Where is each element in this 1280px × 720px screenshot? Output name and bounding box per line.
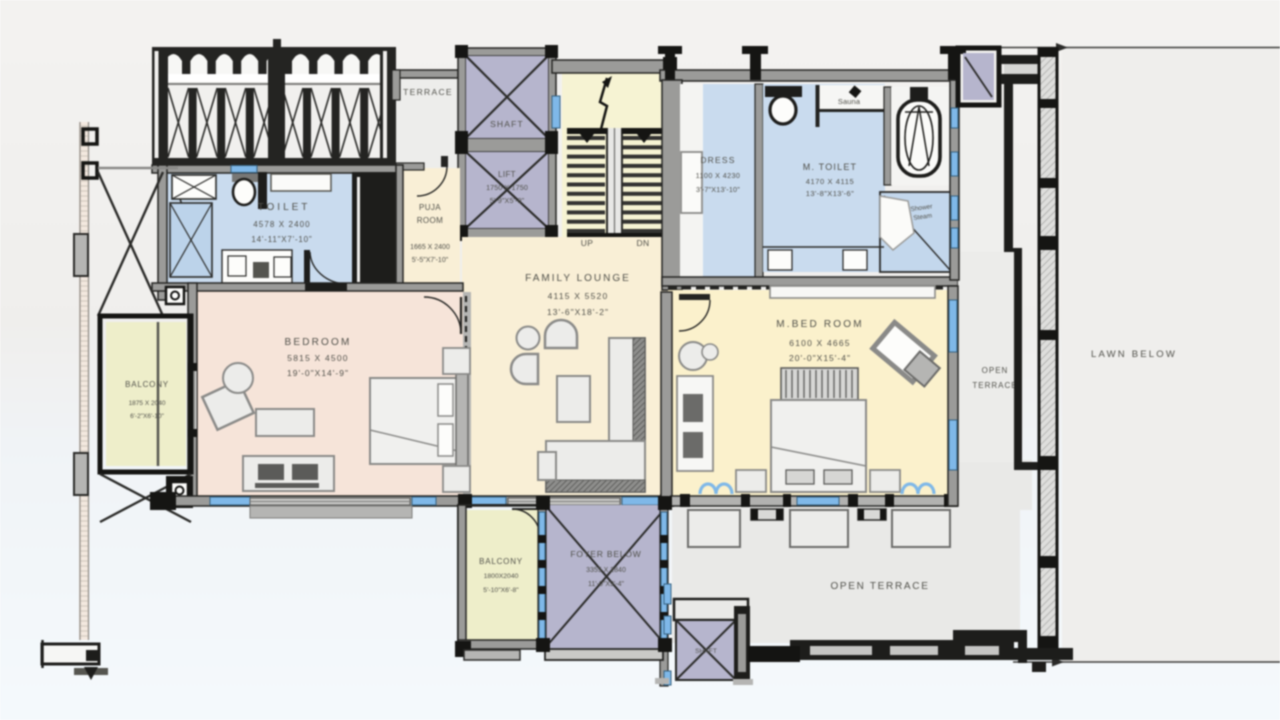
- svg-text:1665 X 2400: 1665 X 2400: [410, 244, 450, 251]
- svg-text:19'-0"X14'-9": 19'-0"X14'-9": [287, 368, 349, 378]
- svg-text:11'-0"X9'-4": 11'-0"X9'-4": [588, 581, 624, 588]
- svg-text:4578 X 2400: 4578 X 2400: [253, 220, 310, 229]
- svg-text:PUJA: PUJA: [419, 203, 441, 212]
- svg-text:Sauna: Sauna: [838, 97, 861, 106]
- svg-text:FAMILY LOUNGE: FAMILY LOUNGE: [525, 273, 631, 284]
- svg-text:SHAFT: SHAFT: [695, 648, 717, 655]
- svg-text:UP: UP: [581, 238, 594, 248]
- svg-text:3'-7"X13'-10": 3'-7"X13'-10": [696, 185, 740, 194]
- svg-text:6100 X 4665: 6100 X 4665: [789, 338, 850, 348]
- svg-text:5'-5"X7'-10": 5'-5"X7'-10": [412, 257, 449, 264]
- svg-text:5'-9"X5'-9": 5'-9"X5'-9": [490, 196, 525, 205]
- svg-text:FOYER BELOW: FOYER BELOW: [570, 549, 641, 559]
- svg-text:BEDROOM: BEDROOM: [284, 337, 351, 348]
- svg-text:M.BED ROOM: M.BED ROOM: [776, 319, 864, 330]
- svg-text:5815 X 4500: 5815 X 4500: [287, 353, 348, 363]
- svg-text:1800X2040: 1800X2040: [484, 573, 519, 580]
- svg-text:13'-8"X13'-6": 13'-8"X13'-6": [806, 189, 854, 198]
- svg-text:DRESS: DRESS: [700, 155, 735, 165]
- svg-text:LAWN BELOW: LAWN BELOW: [1091, 349, 1177, 360]
- svg-text:M. TOILET: M. TOILET: [803, 162, 857, 172]
- svg-text:5'-10"X6'-8": 5'-10"X6'-8": [483, 587, 519, 594]
- svg-text:TOILET: TOILET: [258, 202, 311, 213]
- svg-text:SHAFT: SHAFT: [490, 119, 524, 129]
- svg-text:BALCONY: BALCONY: [479, 557, 523, 566]
- svg-text:DN: DN: [636, 238, 649, 248]
- svg-text:TERRACE: TERRACE: [972, 381, 1017, 390]
- svg-text:ROOM: ROOM: [417, 216, 444, 225]
- svg-text:TERRACE: TERRACE: [403, 87, 453, 97]
- svg-text:OPEN: OPEN: [982, 366, 1009, 375]
- svg-text:1100 X 4230: 1100 X 4230: [696, 171, 741, 180]
- svg-text:6'-2"X6'-10": 6'-2"X6'-10": [130, 413, 165, 420]
- svg-text:4170 X 4115: 4170 X 4115: [806, 177, 855, 186]
- svg-text:3355 X 2840: 3355 X 2840: [586, 567, 626, 574]
- svg-text:13'-6"X18'-2": 13'-6"X18'-2": [547, 307, 609, 317]
- svg-text:1875 X 2040: 1875 X 2040: [129, 400, 166, 407]
- svg-text:OPEN TERRACE: OPEN TERRACE: [830, 581, 929, 592]
- svg-text:14'-11"X7'-10": 14'-11"X7'-10": [251, 235, 312, 244]
- svg-text:LIFT: LIFT: [498, 170, 516, 179]
- svg-text:20'-0"X15'-4": 20'-0"X15'-4": [789, 353, 851, 363]
- svg-text:BALCONY: BALCONY: [125, 380, 169, 389]
- svg-text:1750 X 1750: 1750 X 1750: [486, 183, 528, 192]
- svg-text:4115 X 5520: 4115 X 5520: [548, 291, 609, 301]
